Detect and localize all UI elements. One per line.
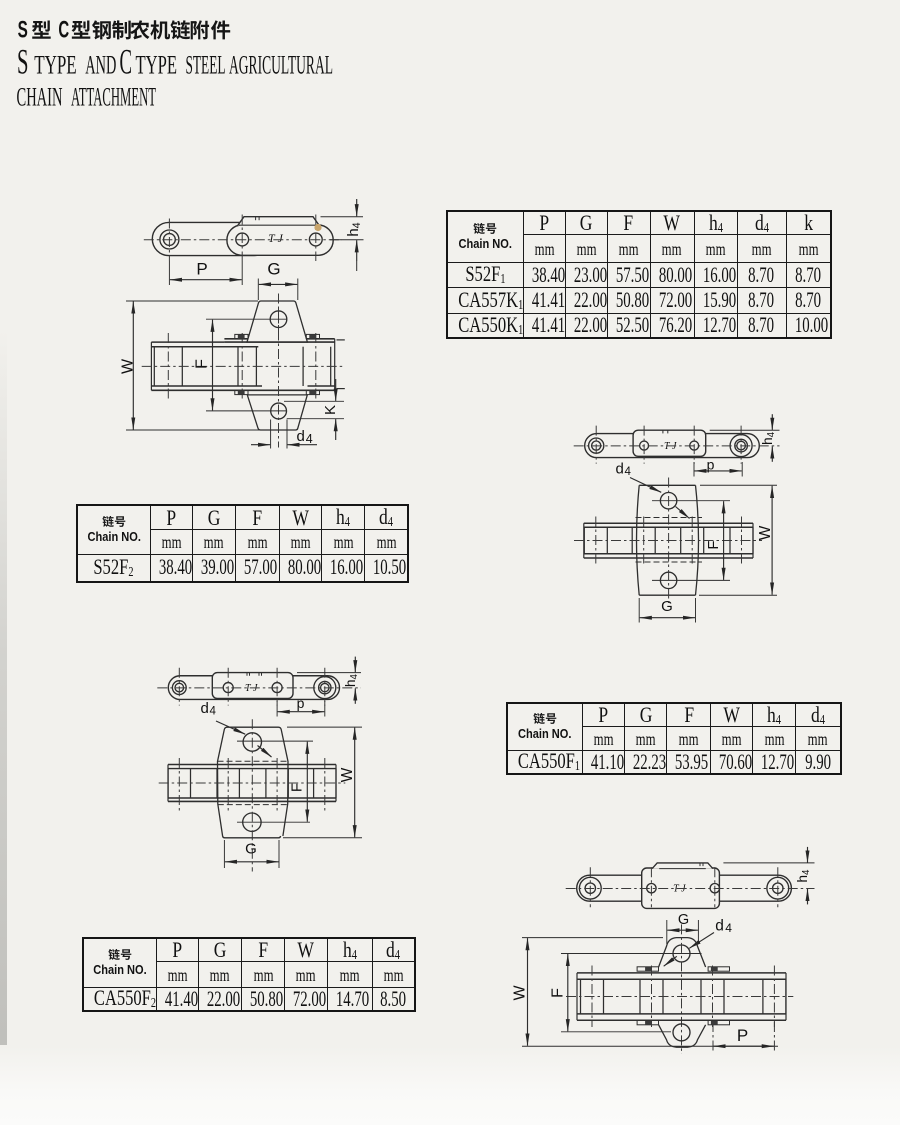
svg-text:C: C [58,17,69,44]
svg-text:W: W [757,525,774,540]
svg-text:TYPE: TYPE [136,50,178,79]
svg-text:d: d [297,428,305,445]
svg-text:S: S [17,41,29,81]
svg-text:CHAIN: CHAIN [17,83,63,112]
svg-text:d: d [715,918,724,935]
svg-text:AND: AND [85,50,116,79]
svg-text:G: G [245,841,257,858]
svg-text:4: 4 [625,466,632,478]
svg-text:4: 4 [725,921,732,935]
svg-text:4: 4 [210,706,217,718]
svg-text:F: F [194,359,211,369]
svg-text:p: p [297,695,305,711]
svg-text:STEEL: STEEL [186,50,226,79]
svg-text:p: p [707,456,715,472]
svg-text:F: F [705,540,722,549]
svg-text:K: K [322,405,339,415]
svg-text:ATTACHMENT: ATTACHMENT [71,83,156,112]
svg-text:W: W [512,985,529,1001]
svg-text:G: G [678,912,689,928]
svg-text:h4: h4 [795,869,812,883]
svg-text:C: C [120,41,133,81]
svg-text:TYPE: TYPE [34,50,76,79]
svg-text:d: d [616,461,624,478]
svg-text:F: F [288,783,305,792]
svg-text:W: W [119,358,136,374]
svg-text:G: G [661,598,673,615]
svg-text:P: P [737,1026,748,1045]
svg-text:F: F [550,988,567,998]
svg-text:h4: h4 [343,674,360,688]
svg-text:d: d [201,700,209,717]
svg-text:P: P [196,260,207,279]
svg-text:G: G [267,260,280,279]
svg-text:W: W [339,767,356,782]
svg-text:4: 4 [306,432,313,446]
svg-text:h4: h4 [345,222,363,236]
svg-text:S: S [18,17,28,44]
svg-text:h4: h4 [760,431,777,445]
svg-text:AGRICULTURAL: AGRICULTURAL [229,50,333,79]
